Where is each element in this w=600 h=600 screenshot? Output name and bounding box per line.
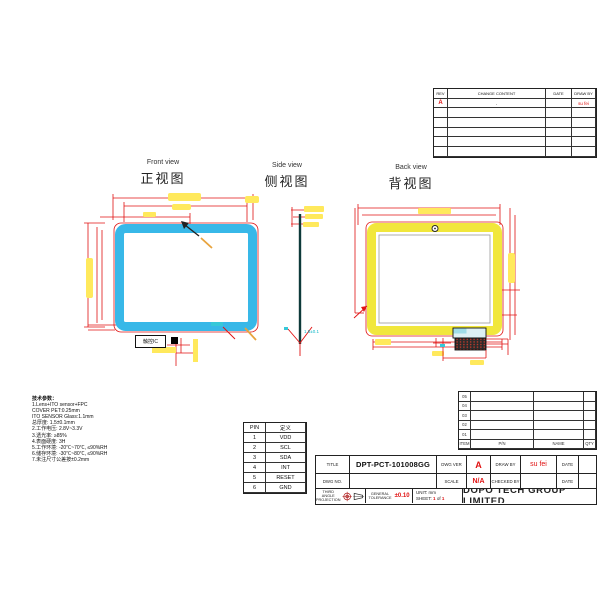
sheet-total: 1 [442, 496, 445, 501]
projection-cell: THIRD ANGLE PROJECTION [316, 489, 366, 503]
checked-by-label: CHECKED BY [491, 474, 521, 488]
scale-value: N/A [467, 474, 491, 488]
tech-parameters: 技术参数： 1.Lens+ITO sensor+FPC COVER PET:0.… [32, 396, 212, 463]
revision-header: DATE [546, 89, 572, 99]
date-label: DATE [557, 456, 579, 473]
revision-empty-cell [434, 128, 448, 138]
dwg-ver-value: A [467, 456, 491, 473]
projection-label-line1: THIRD ANGLE [316, 490, 340, 498]
pin-number: 4 [244, 463, 266, 473]
third-angle-symbol-icon [342, 491, 365, 502]
revision-empty-cell [546, 137, 572, 147]
date-value-empty [579, 474, 596, 488]
pin-signal: SDA [266, 453, 306, 463]
sheet-of: of [437, 496, 441, 501]
dimension-highlights [303, 206, 324, 227]
pin-number: 3 [244, 453, 266, 463]
revision-empty-cell [434, 108, 448, 118]
revision-empty-cell [434, 118, 448, 128]
cyan-mark [440, 344, 445, 347]
side-view-label-en: Side view [252, 162, 322, 169]
pin-number: 2 [244, 443, 266, 453]
draw-by-value: su fei [521, 456, 557, 473]
date-label: DATE [557, 474, 579, 488]
revision-rev: A [434, 99, 448, 109]
scale-label: SCALE [437, 474, 467, 488]
left-leader-arrow [354, 306, 367, 318]
tolerance-value: ±0.10 [395, 493, 410, 499]
pin-number: 6 [244, 483, 266, 493]
back-view-label-en: Back view [376, 164, 446, 171]
revision-header: CHANGE CONTENT [448, 89, 546, 99]
company-name: DOPO TECH GROUP LIMITED [463, 489, 596, 503]
pin-definition-table: PIN 定义 1 VDD 2 SCL 3 SDA 4 INT 5 RESET 6… [243, 422, 307, 494]
bom-item-no: 05 [459, 392, 471, 402]
front-view-label-en: Front view [128, 159, 198, 166]
bom-item-no: 03 [459, 411, 471, 421]
revision-empty-cell [572, 137, 596, 147]
pin-signal: RESET [266, 473, 306, 483]
tolerance-label-line2: TOLERANCE [368, 496, 391, 500]
bom-footer: QTY [584, 440, 596, 450]
revision-empty-cell [546, 118, 572, 128]
bom-empty-cell [584, 421, 596, 431]
revision-empty-cell [572, 118, 596, 128]
bom-empty-cell [584, 402, 596, 412]
date-value-empty [579, 456, 596, 473]
pin-signal: GND [266, 483, 306, 493]
bom-empty-cell [534, 392, 584, 402]
front-view-drawing [75, 190, 275, 380]
touch-ic-box: 触控IC [135, 335, 166, 348]
bom-table: 05 04 03 02 01 ITEM P/N NAME QTY [458, 391, 597, 450]
side-view-label-zh: 侧视图 [252, 171, 322, 190]
sheet-label: SHEET: [416, 496, 432, 501]
revision-empty-cell [448, 147, 546, 157]
fpc-pad [171, 337, 178, 344]
bom-empty-cell [534, 430, 584, 440]
pin-signal: INT [266, 463, 306, 473]
bom-empty-cell [534, 402, 584, 412]
bom-empty-cell [471, 402, 534, 412]
bom-footer: P/N [471, 440, 534, 450]
revision-header: DRAW BY [572, 89, 596, 99]
revision-table: REV CHANGE CONTENT DATE DRAW BY A - su f… [433, 88, 597, 158]
revision-header: REV [434, 89, 448, 99]
revision-empty-cell [546, 128, 572, 138]
bom-footer: NAME [534, 440, 584, 450]
revision-empty-cell [546, 108, 572, 118]
revision-empty-cell [448, 137, 546, 147]
unit-sheet-cell: UNIT: mm SHEET: 1 of 1 [413, 489, 463, 503]
bom-empty-cell [471, 411, 534, 421]
camera-hole [432, 226, 438, 232]
bom-empty-cell [471, 392, 534, 402]
back-view-label-zh: 背视图 [376, 173, 446, 192]
pin-signal: VDD [266, 433, 306, 443]
revision-drawby: su fei [572, 99, 596, 109]
pin-number: 1 [244, 433, 266, 443]
pin-table-header: 定义 [266, 423, 306, 433]
revision-content: - [448, 99, 546, 109]
draw-by-label: DRAW BY [491, 456, 521, 473]
dwg-ver-label: DWG VER [437, 456, 467, 473]
part-number: DPT-PCT-101008GG [350, 456, 437, 473]
title-block: TITLE DPT-PCT-101008GG DWG VER A DRAW BY… [315, 455, 597, 505]
bom-empty-cell [471, 430, 534, 440]
highlight-bar [193, 339, 198, 362]
revision-empty-cell [434, 147, 448, 157]
back-view-drawing [350, 195, 530, 375]
dwg-no-label: DWG NO. [316, 474, 350, 488]
revision-empty-cell [448, 118, 546, 128]
front-view-label-zh: 正视图 [128, 168, 198, 187]
side-view-drawing: 1.5±0.1 [276, 196, 338, 364]
bom-item-no: 04 [459, 402, 471, 412]
bom-empty-cell [584, 392, 596, 402]
pin-table-header: PIN [244, 423, 266, 433]
revision-empty-cell [572, 108, 596, 118]
sheet-page: 1 [433, 496, 436, 501]
cyan-mark [284, 327, 288, 330]
revision-empty-cell [434, 137, 448, 147]
revision-empty-cell [572, 147, 596, 157]
drawing-sheet: Front view 正视图 Side view 侧视图 Back view 背… [0, 0, 600, 600]
bom-empty-cell [584, 411, 596, 421]
touch-panel-back [372, 228, 498, 331]
revision-date [546, 99, 572, 109]
fpc-connector [453, 328, 486, 350]
pin-number: 5 [244, 473, 266, 483]
projection-label-line2: PROJECTION [316, 498, 340, 502]
tolerance-cell: GENERAL TOLERANCE ±0.10 [366, 489, 413, 503]
revision-empty-cell [448, 128, 546, 138]
bom-empty-cell [471, 421, 534, 431]
revision-empty-cell [546, 147, 572, 157]
bom-item-no: 01 [459, 430, 471, 440]
side-thickness-note: 1.5±0.1 [304, 329, 319, 334]
revision-empty-cell [572, 128, 596, 138]
dwg-no-value-empty [350, 474, 437, 488]
pin-signal: SCL [266, 443, 306, 453]
touch-panel-front [120, 229, 253, 327]
checked-by-value-empty [521, 474, 557, 488]
title-label: TITLE [316, 456, 350, 473]
bom-empty-cell [584, 430, 596, 440]
revision-empty-cell [448, 108, 546, 118]
tech-param-line: 7.未注尺寸公差按±0.2mm [32, 457, 212, 463]
bom-item-no: 02 [459, 421, 471, 431]
bom-footer: ITEM [459, 440, 471, 450]
bom-empty-cell [534, 411, 584, 421]
bom-empty-cell [534, 421, 584, 431]
